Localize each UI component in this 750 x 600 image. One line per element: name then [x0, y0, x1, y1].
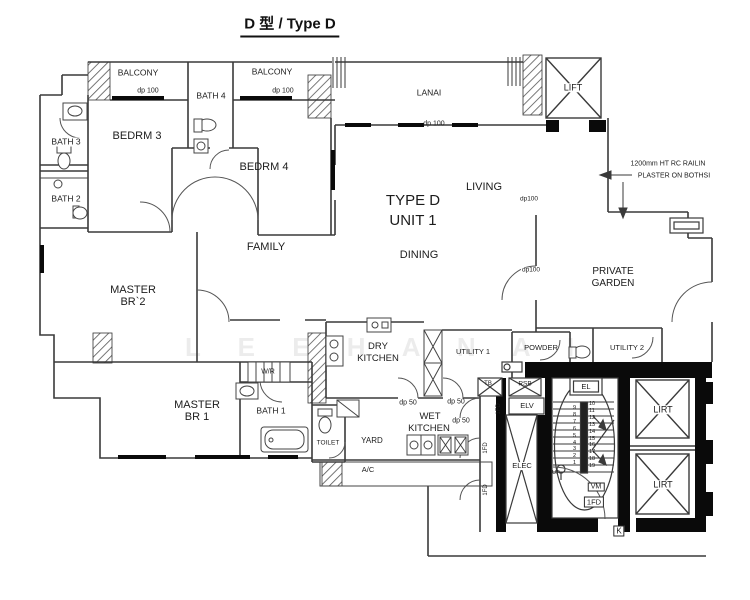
- dim-dp100-lanai: dp 100: [423, 120, 444, 127]
- room-label-bath1: BATH 1: [255, 407, 286, 416]
- room-label-master-br1-line1: MASTER: [174, 400, 220, 412]
- room-label-master-br2-line2: BR`2: [120, 297, 145, 309]
- room-label-dry-kitchen-line2: KITCHEN: [357, 354, 399, 364]
- room-label-bedrm4: BEDRM 4: [240, 162, 289, 174]
- room-label-bath3: BATH 3: [50, 138, 81, 147]
- room-label-powder: POWDER: [524, 344, 558, 352]
- unit-label-line1: TYPE D: [386, 193, 440, 209]
- annotation-leaders: [600, 171, 632, 218]
- room-label-utility1: UTILITY 1: [456, 348, 490, 356]
- room-label-living: LIVING: [466, 182, 502, 194]
- note-railing-line1: 1200mm HT RC RAILIN: [631, 160, 706, 167]
- room-label-yard: YARD: [361, 437, 383, 445]
- dim-dp100-living: dp100: [520, 197, 538, 204]
- unit-label-line2: UNIT 1: [389, 213, 436, 229]
- shaft-label-rsb: RSB: [518, 382, 531, 389]
- room-label-toilet: TOILET: [316, 441, 341, 448]
- dim-dp100-balcony-right: dp 100: [272, 87, 293, 94]
- floorplan-drawing: [0, 0, 750, 600]
- dim-dp50-wet: dp 50: [452, 417, 470, 424]
- shaft-label-elv: ELV: [520, 402, 534, 410]
- room-label-master-br1-line2: BR 1: [185, 412, 209, 424]
- room-label-private-garden-line1: PRIVATE: [592, 267, 633, 278]
- room-label-wet-kitchen-line2: KITCHEN: [408, 424, 450, 434]
- tag-vm: VM: [588, 483, 605, 492]
- stair-numbers-right: 10 11 12 13 14 15 16 17 18 19: [589, 401, 601, 470]
- room-label-bath4: BATH 4: [196, 92, 225, 101]
- tag-k: K: [613, 526, 624, 537]
- stair-numbers-left: 9 8 7 6 5 4 3 2 1: [565, 405, 576, 467]
- tag-1fd-door-3: 1FD: [483, 484, 489, 495]
- room-label-ac: A/C: [362, 466, 375, 474]
- stair-label-el: EL: [581, 383, 590, 391]
- room-label-dining: DINING: [400, 250, 439, 262]
- dim-dp50-dry-left: dp 50: [399, 399, 417, 406]
- room-label-lanai: LANAI: [417, 89, 442, 98]
- room-label-lift-mid: LIRT: [652, 405, 673, 414]
- room-label-lift-top: LIFT: [563, 83, 584, 92]
- room-label-lift-bottom: LIRT: [652, 480, 673, 489]
- dim-dp50-dry-right: dp 50: [447, 398, 465, 405]
- dim-dp100-garden: dp100: [521, 268, 541, 275]
- room-label-dry-kitchen-line1: DRY: [368, 342, 388, 352]
- dim-dp100-balcony-left: dp 100: [137, 87, 158, 94]
- room-label-bedrm3: BEDRM 3: [113, 131, 162, 143]
- floorplan-type-d: D 型 / Type D L E E H A N A I BALCONY dp …: [0, 0, 750, 600]
- room-label-wet-kitchen-line1: WET: [419, 412, 440, 422]
- room-label-wr: W/R: [261, 368, 275, 375]
- shaft-label-elec: ELEC: [511, 462, 533, 470]
- tag-1fd: 1FD: [584, 497, 604, 508]
- room-label-family: FAMILY: [247, 242, 285, 254]
- page-title: D 型 / Type D: [240, 13, 339, 38]
- room-label-private-garden-line2: GARDEN: [592, 279, 635, 290]
- stair-label-up: UP: [552, 471, 560, 477]
- shaft-label-tb: TB: [484, 381, 492, 387]
- note-railing-line2: PLASTER ON BOTHSI: [638, 172, 710, 179]
- room-label-balcony-left: BALCONY: [118, 69, 159, 78]
- tag-1fd-door-1: 1FD: [496, 403, 502, 414]
- hatched-walls: [88, 55, 542, 486]
- tag-1fd-door-2: 1FD: [483, 442, 489, 453]
- room-label-utility2: UTILITY 2: [610, 344, 644, 352]
- room-label-bath2: BATH 2: [51, 195, 80, 204]
- room-label-master-br2-line1: MASTER: [110, 285, 156, 297]
- room-label-balcony-right: BALCONY: [252, 68, 293, 77]
